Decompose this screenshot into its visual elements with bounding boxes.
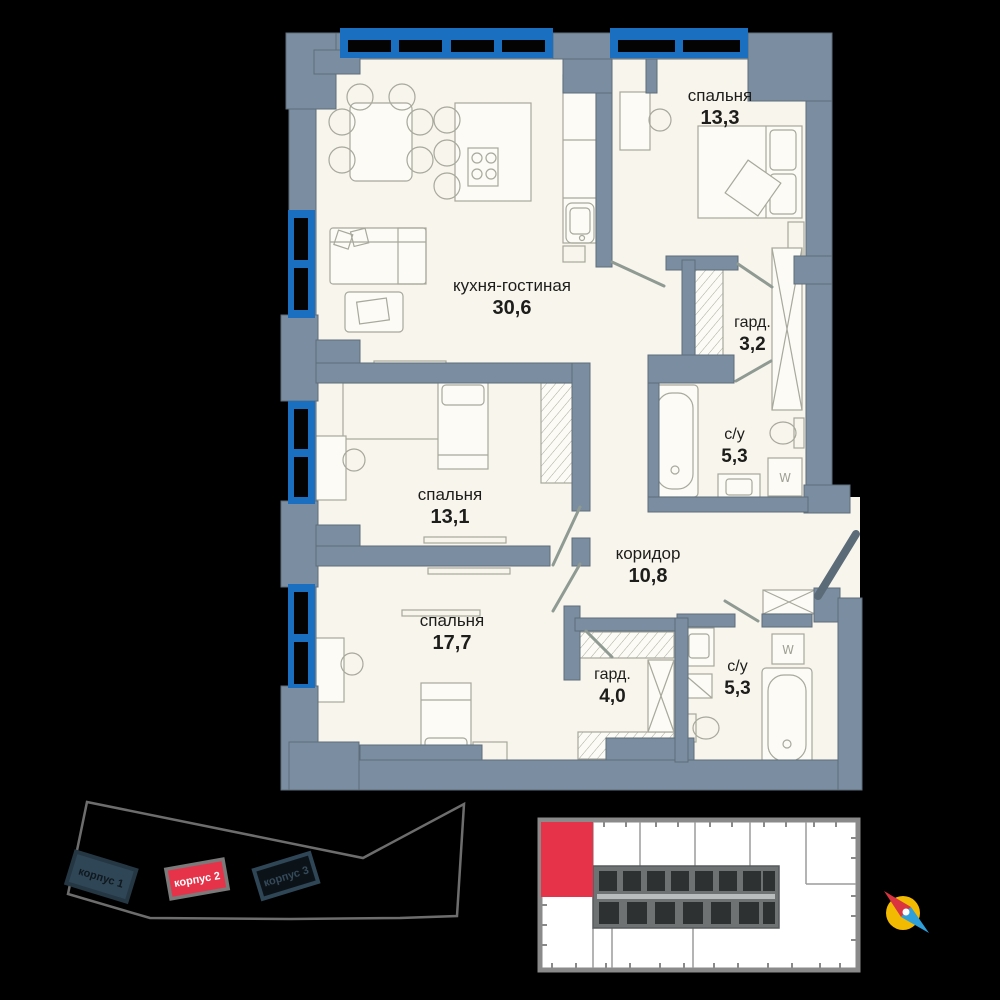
plan-canvas: W W: [0, 0, 1000, 1000]
building-marker-korpus-1[interactable]: корпус 1: [66, 852, 136, 902]
building-marker-korpus-2[interactable]: корпус 2: [166, 859, 228, 899]
washer-label-upper: W: [779, 471, 791, 485]
floor-plan-mini: [540, 820, 858, 970]
apartment-plan: W W: [281, 28, 862, 790]
selected-unit-highlight[interactable]: [541, 822, 593, 897]
washer-label-lower: W: [782, 643, 794, 657]
compass-icon: [884, 891, 929, 933]
site-plan: корпус 1 корпус 2 корпус 3: [66, 802, 464, 919]
floorplan-page: W W: [0, 0, 1000, 1000]
building-marker-korpus-3[interactable]: корпус 3: [254, 853, 318, 899]
